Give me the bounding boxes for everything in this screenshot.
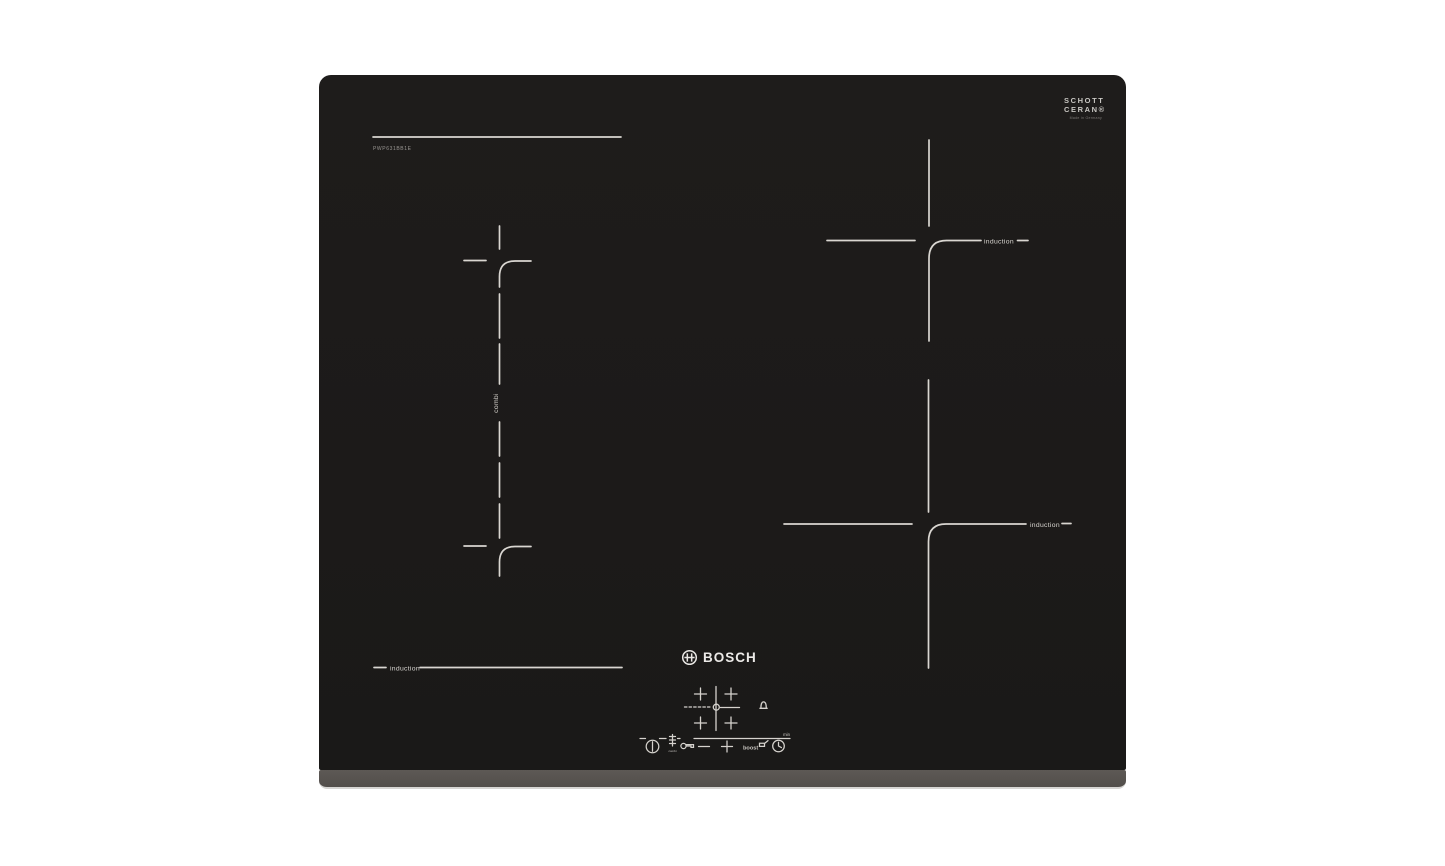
bell-icon <box>760 702 767 708</box>
front-right-zone-marking: induction <box>784 380 1071 668</box>
pan-icon <box>760 741 769 747</box>
combi-zone-label: combi <box>493 393 500 413</box>
product-photo-stage: PWP631BB1E SCHOTT CERAN® Made in Germany… <box>0 0 1445 866</box>
timer-unit-label: min <box>783 732 791 737</box>
zone-select-plus-front-right[interactable] <box>725 717 737 729</box>
back-right-zone-marking: induction <box>827 140 1028 341</box>
key-icon[interactable] <box>681 743 694 748</box>
zone-select-plus-back-right[interactable] <box>725 688 737 700</box>
induction-hob-glass: PWP631BB1E SCHOTT CERAN® Made in Germany… <box>319 75 1126 770</box>
front-left-zone-marking: induction <box>374 665 622 672</box>
boost-key-label: boost <box>743 745 758 751</box>
zone-select-cross-icon <box>685 687 768 731</box>
combi-zone-marking: combi <box>464 226 531 576</box>
front-bezel <box>319 770 1126 789</box>
control-strip: combi boost min <box>640 732 791 753</box>
glass-markings: combi induction induction ind <box>319 75 1126 770</box>
combi-key-label: combi <box>668 749 676 753</box>
timer-key[interactable] <box>773 740 785 752</box>
back-right-zone-label: induction <box>984 238 1014 245</box>
plus-key[interactable] <box>722 741 733 752</box>
combi-zones-icon[interactable] <box>670 735 676 747</box>
zone-select-plus-back-left[interactable] <box>695 688 707 700</box>
zone-select-plus-front-left[interactable] <box>695 717 707 729</box>
power-button[interactable] <box>646 740 659 753</box>
boost-key[interactable]: boost <box>743 741 768 752</box>
front-left-zone-label: induction <box>390 665 420 672</box>
front-right-zone-label: induction <box>1030 522 1060 529</box>
